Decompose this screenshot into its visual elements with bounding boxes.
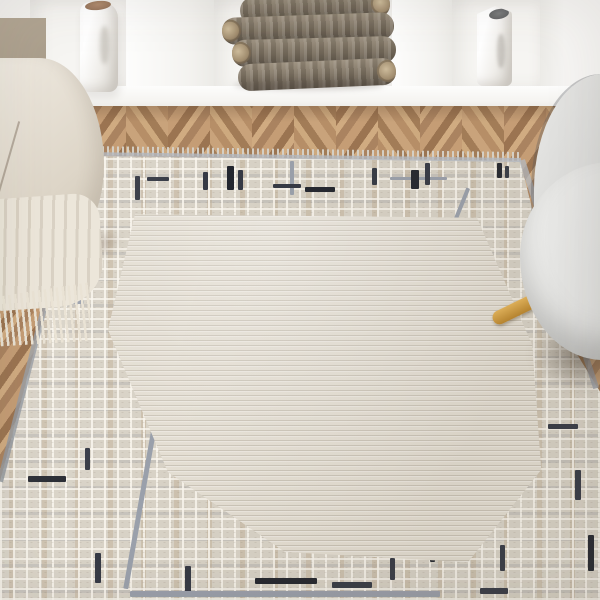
rug-accent-dash [411,170,419,189]
rug-accent-dash [390,558,395,580]
firewood-shadow [234,80,384,90]
rug-accent-dash [372,168,377,185]
rug-accent-dash [130,591,440,597]
rug-accent-dash [575,470,581,500]
rug-accent-dash [305,187,335,192]
rug-accent-dash [500,545,505,571]
rug-accent-dash [497,163,502,178]
rug-accent-dash [588,535,594,571]
rug-accent-dash [123,421,157,589]
rug-accent-dash [147,177,169,181]
rug-accent-dash [290,161,294,195]
face-vase-left [80,2,118,92]
rug-accent-dash [425,163,430,185]
vase-face-profile [497,34,505,68]
shelf-divider [392,0,452,98]
living-room-photo [0,0,600,600]
rug-accent-dash [480,588,508,594]
rug-accent-dash [273,184,301,188]
rug-accent-dash [203,172,208,190]
rug-accent-dash [28,476,66,482]
rug-accent-dash [548,424,578,429]
rug-accent-dash [185,566,191,592]
face-vase-right [477,6,512,86]
log-end-grain [376,59,396,82]
rug-accent-dash [255,578,317,584]
rug-accent-dash [238,170,243,190]
rug-accent-dash [95,553,101,583]
shelf-divider [126,0,214,97]
rug-accent-dash [85,448,90,470]
firewood-stack [224,0,392,94]
vase-opening [85,0,112,11]
rug-accent-dash [505,166,509,178]
rug-accent-dash [332,582,372,588]
rug-accent-dash [135,176,140,200]
rug-accent-dash [227,166,234,190]
vase-face-profile [100,26,109,64]
